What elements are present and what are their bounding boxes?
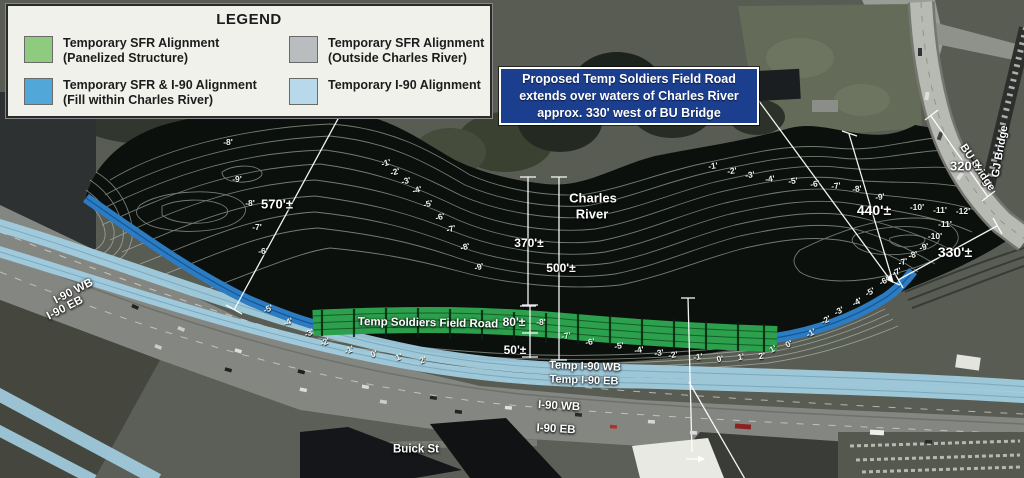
depth-label: 0' <box>716 354 724 364</box>
legend-item: Temporary SFR & I-90 Alignment(Fill with… <box>24 78 257 108</box>
legend-item: Temporary I-90 Alignment <box>289 78 481 105</box>
measurement-label: 320'± <box>950 160 982 173</box>
legend-item: Temporary SFR Alignment(Outside Charles … <box>289 36 484 66</box>
measurement-label: 80'± <box>503 316 526 328</box>
map-label: Buick St <box>393 444 439 456</box>
depth-label: -6' <box>258 247 268 256</box>
legend-item-label: Temporary SFR Alignment(Panelized Struct… <box>63 36 219 66</box>
measurement-label: 440'± <box>857 203 891 217</box>
depth-label: -12' <box>956 207 970 216</box>
depth-label: -4' <box>411 185 422 196</box>
depth-label: -3' <box>745 170 756 180</box>
depth-label: -4' <box>765 174 776 184</box>
depth-label: -1' <box>693 352 704 362</box>
depth-label: -3' <box>654 348 665 358</box>
depth-label: -2' <box>389 167 400 178</box>
measurement-label: 370'± <box>514 237 543 249</box>
measurement-label: 330'± <box>938 245 972 259</box>
depth-label: -8' <box>852 184 863 194</box>
proposed-road-callout: Proposed Temp Soldiers Field Road extend… <box>499 67 759 125</box>
depth-label: -8' <box>459 242 470 253</box>
depth-label: -6' <box>434 212 445 223</box>
map-label: River <box>576 208 609 221</box>
depth-label: -8' <box>223 138 233 147</box>
legend-item-label: Temporary I-90 Alignment <box>328 78 481 93</box>
depth-label: -11' <box>933 206 947 215</box>
legend-swatch <box>24 36 53 63</box>
legend-swatch <box>289 78 318 105</box>
map-label: Temp Soldiers Field Road <box>358 317 499 331</box>
map-label: I-90 EB <box>536 423 576 437</box>
depth-label: -8' <box>907 250 918 261</box>
depth-label: -5' <box>422 199 433 210</box>
map-label: Charles <box>569 192 617 205</box>
depth-label: -3' <box>400 176 411 187</box>
callout-line: extends over waters of Charles River <box>501 88 757 105</box>
site-plan-figure: LEGEND Temporary SFR Alignment(Panelized… <box>0 0 1024 478</box>
depth-label: -7' <box>831 181 842 191</box>
measurement-label: 50'± <box>504 344 527 356</box>
depth-label: -10' <box>928 232 942 241</box>
legend-item: Temporary SFR Alignment(Panelized Struct… <box>24 36 219 66</box>
depth-label: -9' <box>918 242 929 253</box>
depth-label: 1' <box>737 352 745 362</box>
depth-label: -7' <box>445 224 456 235</box>
depth-label: -8' <box>245 199 255 208</box>
depth-label: -9' <box>875 192 886 202</box>
legend-title: LEGEND <box>8 11 490 28</box>
measurement-label: 570'± <box>261 198 293 211</box>
depth-label: -8' <box>536 318 546 327</box>
depth-label: -7' <box>252 223 262 232</box>
depth-label: -9' <box>232 175 242 184</box>
depth-label: -2' <box>668 350 679 360</box>
callout-line: approx. 330' west of BU Bridge <box>501 105 757 122</box>
legend-item-label: Temporary SFR & I-90 Alignment(Fill with… <box>63 78 257 108</box>
measurement-label: 500'± <box>546 262 575 274</box>
depth-label: -11' <box>938 220 952 229</box>
depth-label: -5' <box>614 341 625 351</box>
depth-label: -5' <box>788 176 799 186</box>
map-label: I-90 WB <box>538 400 581 414</box>
depth-label: -6' <box>810 179 821 189</box>
depth-label: 2' <box>758 351 766 361</box>
legend-item-label: Temporary SFR Alignment(Outside Charles … <box>328 36 484 66</box>
legend-swatch <box>289 36 318 63</box>
depth-label: -10' <box>910 203 924 212</box>
depth-label: -4' <box>634 345 645 355</box>
depth-label: -9' <box>473 262 484 273</box>
field-patch <box>834 84 890 116</box>
legend-swatch <box>24 78 53 105</box>
legend-box: LEGEND Temporary SFR Alignment(Panelized… <box>6 4 492 118</box>
depth-label: -6' <box>585 337 596 347</box>
map-label: Temp I-90 EB <box>549 374 618 387</box>
depth-label: -7' <box>561 331 572 341</box>
building-roof <box>812 100 838 112</box>
depth-label: -2' <box>727 166 738 176</box>
depth-label: -1' <box>708 161 719 171</box>
callout-line: Proposed Temp Soldiers Field Road <box>501 71 757 88</box>
